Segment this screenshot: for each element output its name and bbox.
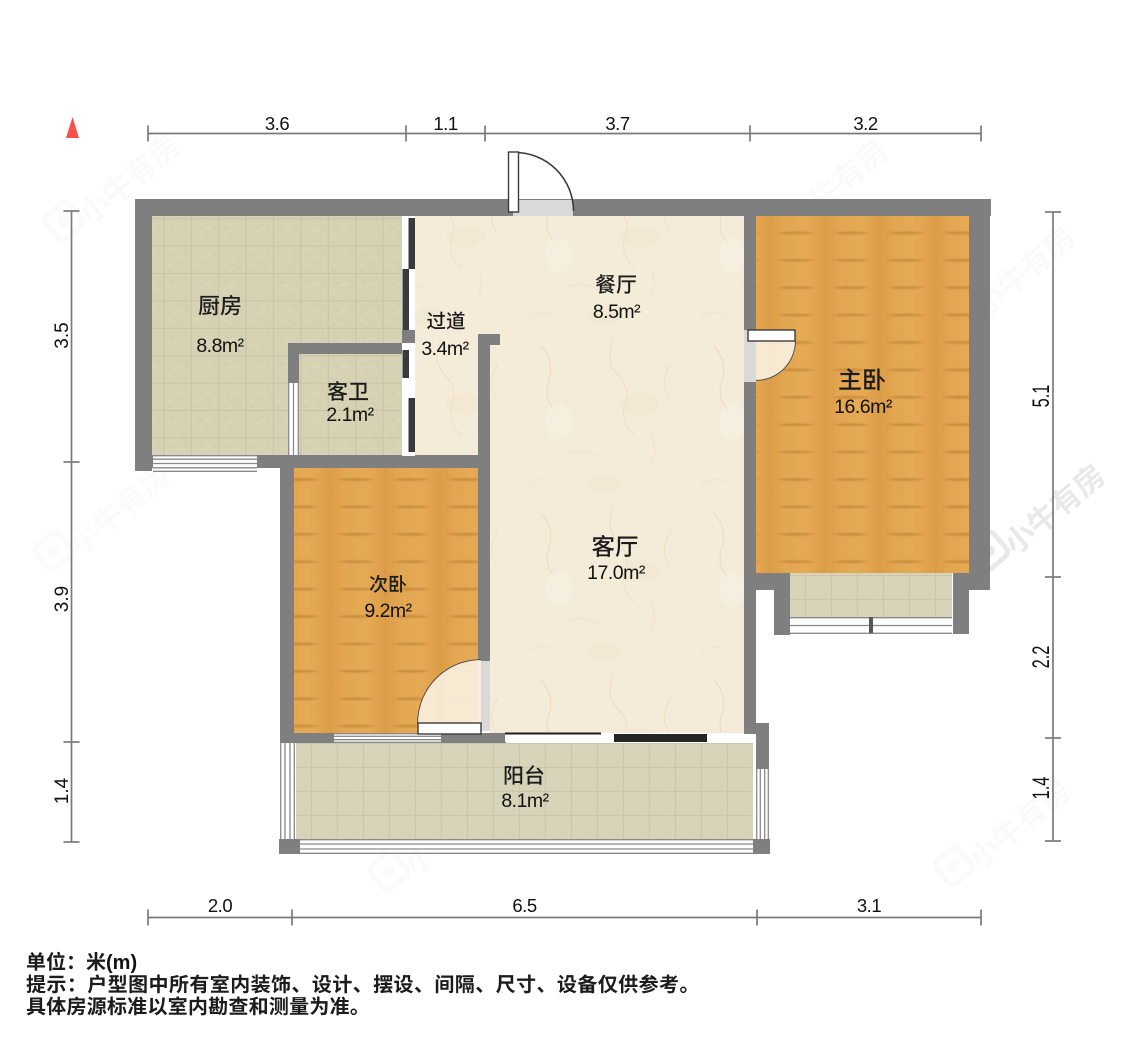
svg-text:1.4: 1.4	[1028, 777, 1055, 800]
svg-text:8.5m²: 8.5m²	[593, 301, 641, 323]
svg-text:3.9: 3.9	[52, 586, 73, 612]
svg-text:8.1m²: 8.1m²	[501, 790, 549, 812]
svg-text:2.0: 2.0	[208, 895, 232, 916]
svg-text:2.1m²: 2.1m²	[326, 404, 374, 426]
svg-text:3.4m²: 3.4m²	[421, 338, 469, 360]
svg-text:16.6m²: 16.6m²	[834, 396, 893, 418]
svg-text:6.5: 6.5	[512, 895, 536, 916]
svg-text:17.0m²: 17.0m²	[587, 562, 646, 584]
svg-text:3.7: 3.7	[605, 113, 629, 134]
svg-text:3.2: 3.2	[853, 113, 877, 134]
svg-text:(m): (m)	[106, 952, 137, 974]
svg-text:8.8m²: 8.8m²	[196, 335, 244, 357]
svg-text:2.2: 2.2	[1028, 646, 1055, 669]
svg-text:3.5: 3.5	[52, 322, 73, 348]
svg-text:1.4: 1.4	[52, 777, 73, 804]
svg-text:5.1: 5.1	[1028, 385, 1055, 408]
svg-text:1.1: 1.1	[433, 113, 457, 134]
svg-text:3.6: 3.6	[265, 113, 289, 134]
svg-text:3.1: 3.1	[857, 895, 881, 916]
svg-text:9.2m²: 9.2m²	[364, 600, 412, 622]
